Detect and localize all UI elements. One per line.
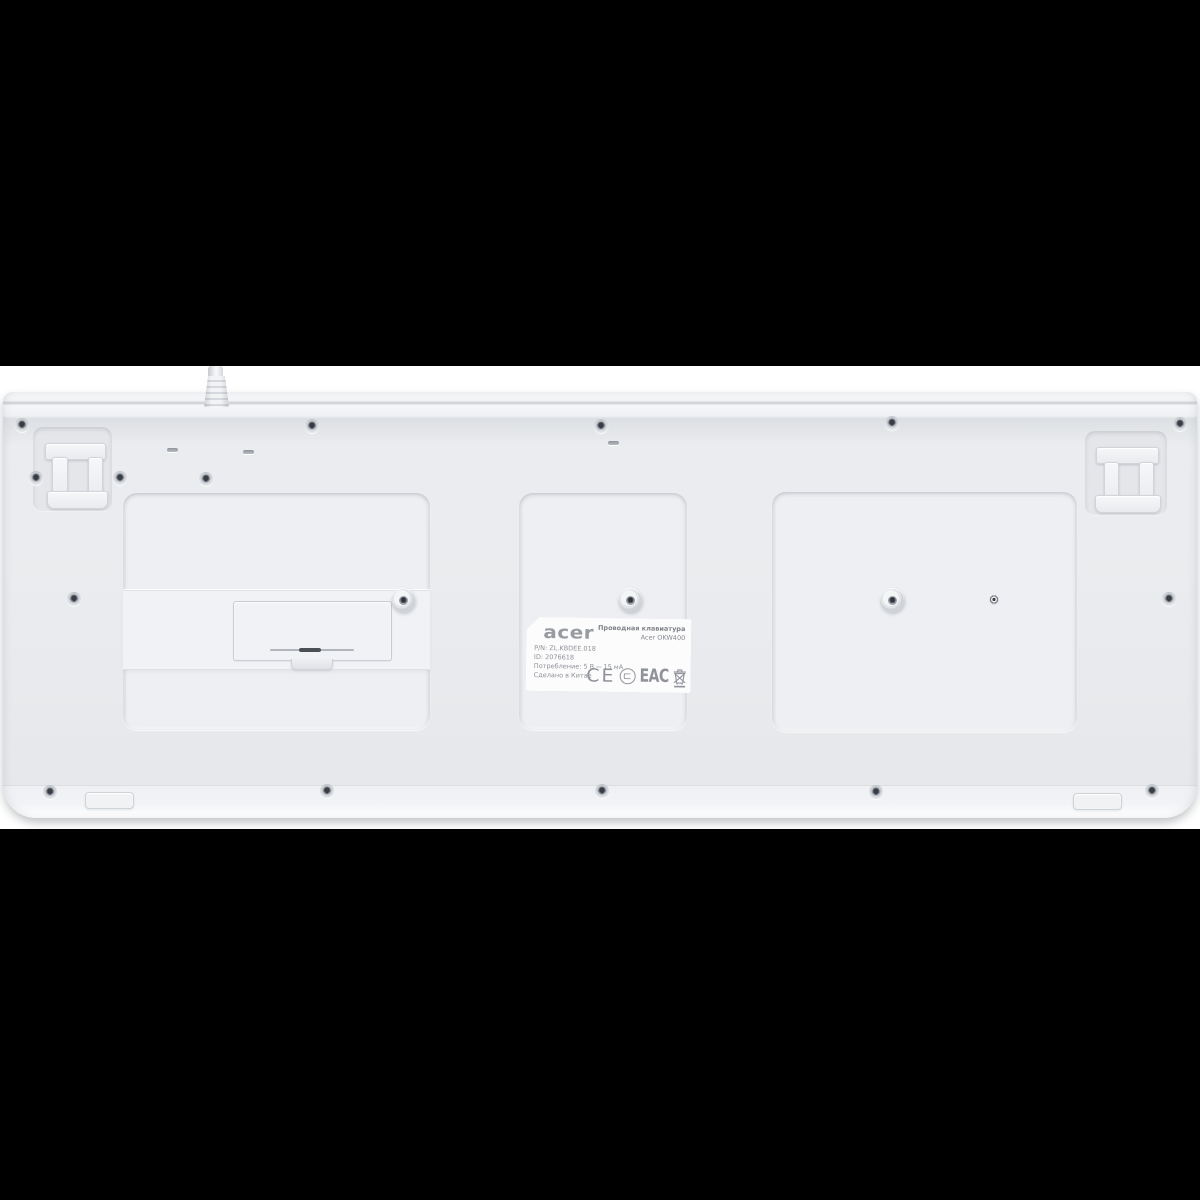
keyboard-back-body: acer Проводная клавиатура Acer OKW400 P/… [3,392,1197,818]
certification-marks: CE EAC [586,666,687,687]
rubber-foot-left [85,792,134,809]
screw [320,784,334,798]
screw [113,471,127,485]
rostest-mark-icon [619,668,635,684]
screw [43,785,57,799]
product-model: Acer OKW400 [598,633,685,643]
weee-bin-icon [673,666,687,687]
cable-strain-relief [204,376,229,407]
pin-hole [989,595,999,605]
recess-panel-left [123,493,430,730]
screw [29,471,43,485]
molded-slot [243,450,254,454]
screw-boss [880,588,904,612]
screw [67,592,81,606]
screw [869,785,883,799]
acer-logo: acer [543,623,594,641]
recess-panel-right [772,492,1077,732]
screw [199,472,213,486]
screw [1162,592,1176,606]
eac-mark: EAC [639,667,668,686]
screw [594,419,608,433]
screw-boss [391,588,415,612]
screw-boss [618,588,642,612]
screw [595,784,609,798]
screw [1145,784,1159,798]
screw [885,416,899,430]
product-photo-stage: acer Проводная клавиатура Acer OKW400 P/… [0,0,1200,1200]
recess-panel-middle [519,493,687,730]
molded-slot [167,448,178,452]
product-label: acer Проводная клавиатура Acer OKW400 P/… [525,617,691,693]
service-door [233,601,392,661]
screw [15,418,29,432]
molded-slot [608,441,619,445]
foot-base [1095,495,1161,513]
screw [1173,417,1187,431]
keyboard-top-edge [3,392,1197,418]
label-titles: Проводная клавиатура Acer OKW400 [598,624,686,643]
ce-mark: CE [586,667,616,685]
rubber-foot-right [1073,793,1122,810]
service-door-latch-slot [299,648,321,652]
screw [305,419,319,433]
service-door-tab [291,659,333,670]
foot-base [47,491,108,509]
